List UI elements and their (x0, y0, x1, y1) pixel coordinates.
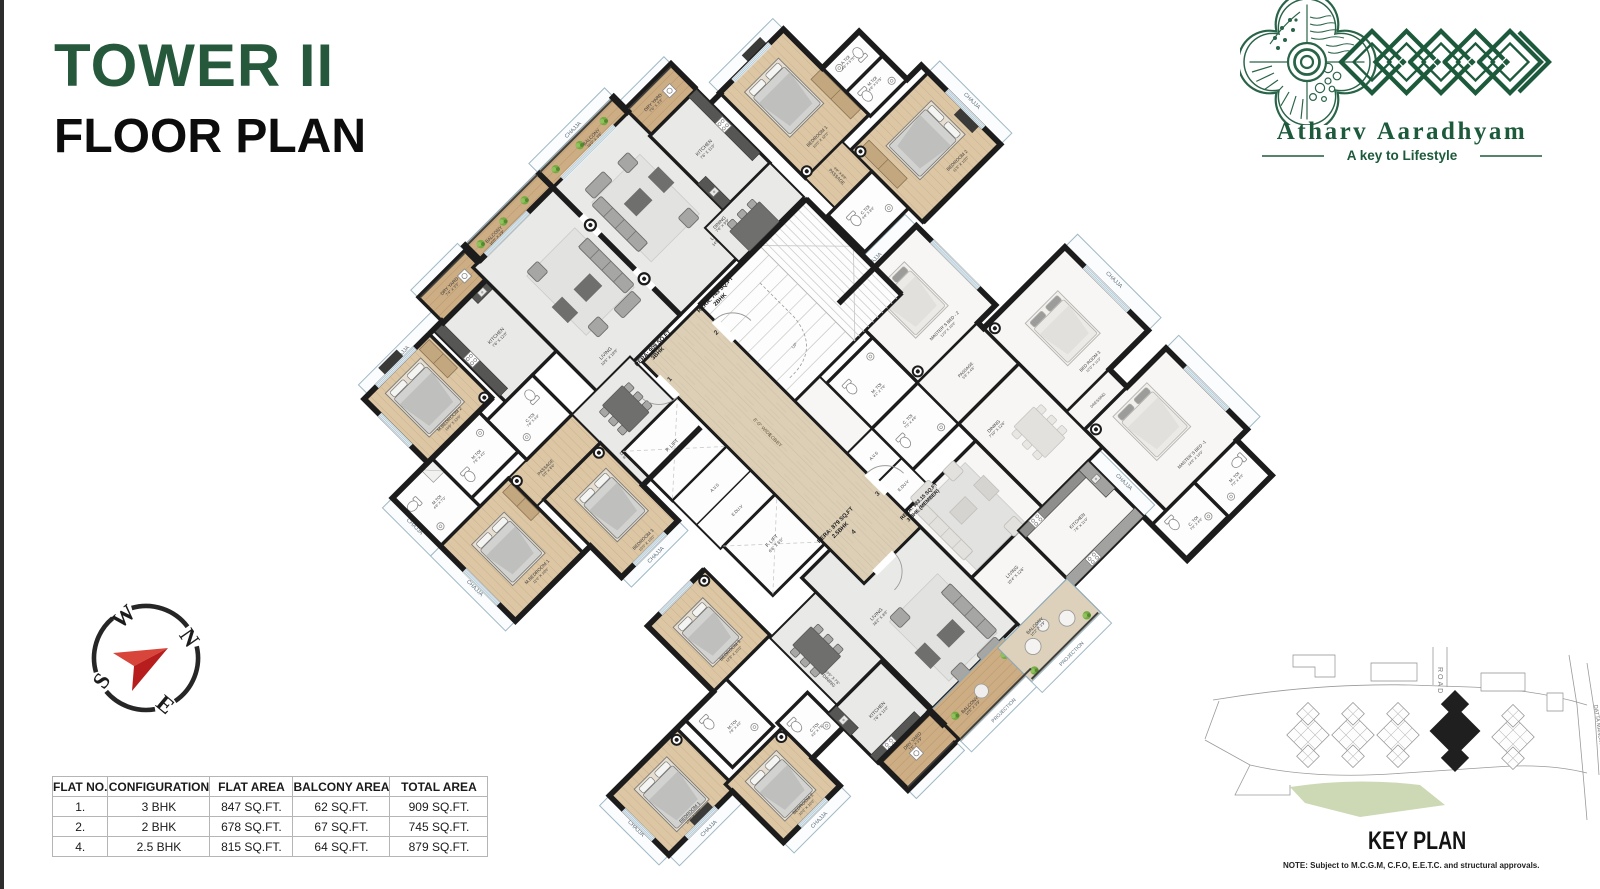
svg-text:A key to Lifestyle: A key to Lifestyle (1347, 148, 1458, 163)
svg-text:S: S (88, 668, 116, 693)
svg-text:N: N (174, 624, 204, 652)
svg-text:E: E (151, 690, 179, 719)
svg-text:DATTA MANDIR RD: DATTA MANDIR RD (1592, 704, 1600, 754)
svg-text:ROAD: ROAD (1436, 667, 1443, 695)
